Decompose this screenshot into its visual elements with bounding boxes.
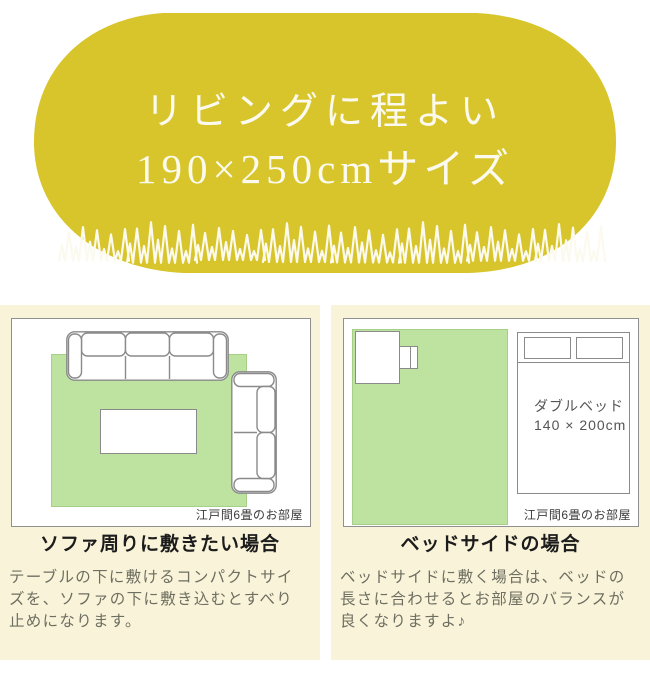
hero-line-1: リビングに程よい [31, 84, 619, 140]
hero-banner: リビングに程よい 190×250cmサイズ [31, 10, 619, 278]
sofa-section-heading: ソファ周りに敷きたい場合 [0, 534, 320, 556]
table-icon [100, 409, 197, 454]
desk-icon [355, 331, 400, 384]
bed-room-diagram: ダブルベッド 140 × 200cm 江戸間6畳のお部屋 [343, 318, 639, 527]
sofa-room-diagram: 江戸間6畳のお部屋 [11, 318, 311, 527]
chair-back-line [410, 346, 411, 369]
sofa-section: 江戸間6畳のお部屋 ソファ周りに敷きたい場合 テーブルの下に敷けるコンパクトサイ… [0, 305, 320, 660]
sofa-section-description: テーブルの下に敷けるコンパクトサイ ズを、ソファの下に敷き込むとすべり 止めにな… [9, 567, 312, 633]
bed-size-label: 140 × 200cm [534, 416, 626, 435]
hero-line-2: 190×250cmサイズ [31, 140, 619, 198]
bed-section-description: ベッドサイドに敷く場合は、ベッドの 長さに合わせるとお部屋のバランスが 良くなり… [340, 567, 642, 633]
sofa-3seat-icon [66, 331, 229, 381]
bed-label: ダブルベッド 140 × 200cm [534, 397, 626, 435]
page: リビングに程よい 190×250cmサイズ [0, 0, 650, 692]
room-size-label: 江戸間6畳のお部屋 [524, 506, 631, 523]
pillow-icon [524, 337, 571, 359]
pillow-icon [576, 337, 623, 359]
bed-type-label: ダブルベッド [534, 397, 626, 416]
room-size-label: 江戸間6畳のお部屋 [196, 506, 303, 523]
sofa-2seat-icon [231, 371, 277, 494]
hero-text: リビングに程よい 190×250cmサイズ [31, 10, 619, 198]
bed-section-heading: ベッドサイドの場合 [331, 534, 650, 556]
bed-sheet-line [518, 362, 629, 363]
bed-section: ダブルベッド 140 × 200cm 江戸間6畳のお部屋 ベッドサイドの場合 ベ… [331, 305, 650, 660]
bed-icon: ダブルベッド 140 × 200cm [517, 332, 630, 494]
chair-icon [399, 346, 418, 369]
